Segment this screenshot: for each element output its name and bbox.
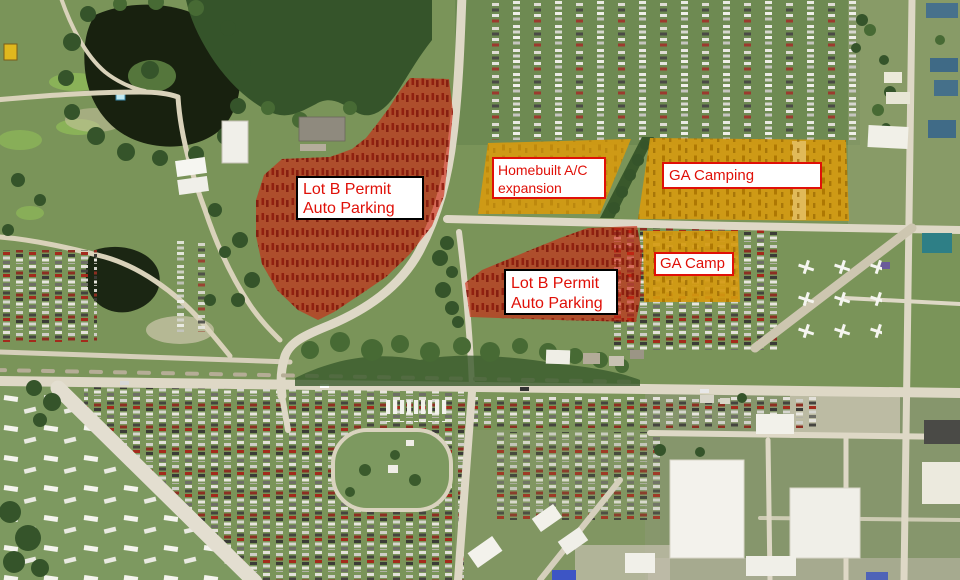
label-ga-camping: GA Camping (662, 162, 822, 189)
label-ga-camping-text: GA Camping (669, 167, 754, 184)
label-ga-camp-text: GA Camp (660, 255, 725, 272)
label-ga-camp: GA Camp (654, 252, 734, 276)
label-lot-b-upper-line1: Lot B Permit (303, 180, 422, 199)
label-homebuilt-expansion: Homebuilt A/C expansion (492, 157, 606, 199)
aerial-photo-background (0, 0, 960, 580)
label-homebuilt-line2: expansion (498, 179, 604, 197)
label-homebuilt-line1: Homebuilt A/C (498, 161, 604, 179)
label-lot-b-lower: Lot B Permit Auto Parking (504, 269, 618, 315)
label-lot-b-lower-line2: Auto Parking (511, 294, 616, 314)
aerial-parking-map: Lot B Permit Auto Parking Homebuilt A/C … (0, 0, 960, 580)
label-lot-b-upper: Lot B Permit Auto Parking (296, 176, 424, 220)
airplane-parking-area (782, 255, 882, 350)
label-lot-b-upper-line2: Auto Parking (303, 199, 422, 218)
label-lot-b-lower-line1: Lot B Permit (511, 274, 616, 294)
oval-track (333, 430, 451, 510)
